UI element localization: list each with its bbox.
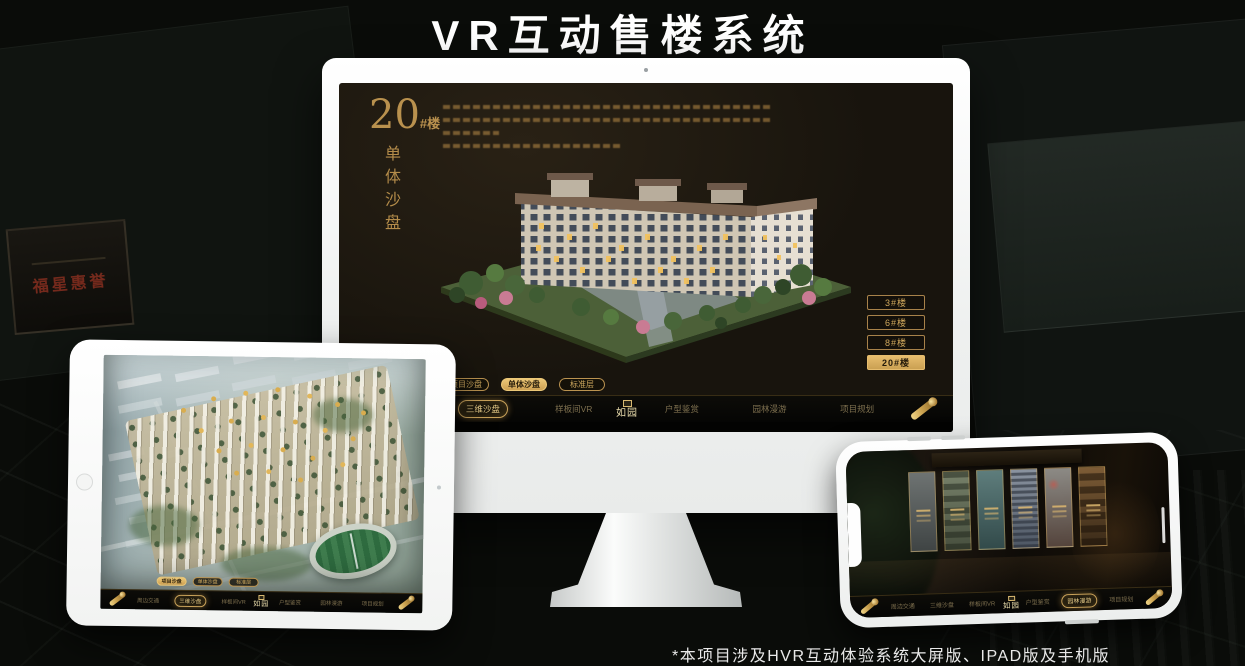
nav-item[interactable]: 样板间VR [222,597,246,605]
brand-logo[interactable]: 如园 [1003,595,1020,609]
phone-screen: 周边交通三维沙盘样板间VR 如园 户型鉴赏园林漫游项目规划 [845,442,1172,618]
nav-item[interactable]: 项目规划 [840,403,874,415]
mode-tab[interactable]: 标准层 [559,378,605,391]
nav-item[interactable]: 户型鉴赏 [279,598,301,606]
scene-panel[interactable] [942,470,971,551]
view-title-vertical: 单体沙盘 [379,145,403,275]
nav-item[interactable]: 三维沙盘 [930,600,954,610]
scene-panel[interactable] [1010,468,1039,549]
monitor-mode-tabs: 项目沙盘单体沙盘标准层 [443,378,605,391]
volume-button[interactable] [941,435,965,440]
mode-tab[interactable]: 单体沙盘 [193,577,223,586]
monitor-stand [546,513,746,607]
tablet-bottom-nav: 周边交通三维沙盘样板间VR 如园 户型鉴赏园林漫游项目规划 [100,589,422,613]
building-button[interactable]: 8#楼 [867,335,925,350]
tablet-mode-tabs: 项目沙盘单体沙盘标准层 [157,577,259,587]
scroll-icon[interactable] [910,398,936,421]
tablet-device: 项目沙盘单体沙盘标准层 周边交通三维沙盘样板间VR 如园 户型鉴赏园林漫游项目规… [66,339,456,630]
intro-text-line [443,105,773,109]
scroll-icon[interactable] [398,596,415,610]
phone-nav-right: 户型鉴赏园林漫游项目规划 [1020,591,1140,609]
plaque-text: 福星惠誉 [32,267,110,298]
scroll-icon[interactable] [860,599,878,615]
background-plaque: 福星惠誉 [6,219,135,335]
power-button[interactable] [1065,619,1099,624]
building-headline: 20#楼 [369,95,440,135]
phone-nav-left: 周边交通三维沙盘样板间VR [883,598,1003,611]
monitor-nav-right: 户型鉴赏园林漫游项目规划 [638,403,901,415]
phone-notch [847,503,862,567]
background-river-photo [987,117,1245,332]
building-number: 20 [369,92,420,138]
mode-tab[interactable]: 标准层 [229,578,259,587]
aerial-vignette [100,355,426,613]
intro-text-line [443,118,773,122]
nav-item[interactable]: 园林漫游 [320,598,342,606]
mode-tab[interactable]: 单体沙盘 [501,378,547,391]
brand-seal-icon [623,400,632,407]
mode-tab[interactable]: 项目沙盘 [157,577,187,586]
building-button[interactable]: 3#楼 [867,295,925,310]
brand-logo-text: 如园 [253,601,269,608]
home-button[interactable] [76,473,93,490]
nav-item[interactable]: 户型鉴赏 [1026,597,1050,607]
nav-item[interactable]: 样板间VR [555,403,592,415]
scene-gallery [908,466,1107,552]
plaque-rule [32,257,106,265]
interior-beam [932,449,1082,468]
home-indicator[interactable] [1161,507,1165,543]
tablet-camera-icon [437,485,441,489]
brand-logo-text: 如园 [1003,601,1020,609]
scene-panel[interactable] [908,471,937,552]
nav-item[interactable]: 项目规划 [362,599,384,607]
background-collage-right [942,16,1245,473]
scene-panel[interactable] [1044,467,1073,548]
tablet-nav-right: 户型鉴赏园林漫游项目规划 [269,598,393,608]
nav-item[interactable]: 样板间VR [969,598,996,608]
brand-logo[interactable]: 如园 [253,595,269,608]
building-button[interactable]: 20#楼 [867,355,925,370]
tablet-screen: 项目沙盘单体沙盘标准层 周边交通三维沙盘样板间VR 如园 户型鉴赏园林漫游项目规… [100,355,426,613]
nav-item[interactable]: 三维沙盘 [458,400,508,418]
building-unit: #楼 [420,116,440,131]
footnote: *本项目涉及HVR互动体验系统大屏版、IPAD版及手机版 [672,642,1110,666]
scene-panel[interactable] [1078,466,1107,547]
brand-logo[interactable]: 如园 [616,400,638,419]
scroll-icon[interactable] [109,592,126,606]
nav-item[interactable]: 周边交通 [137,596,159,604]
page-title: VR互动售楼系统 [0,2,1245,63]
brand-logo-text: 如园 [616,409,638,419]
nav-item[interactable]: 周边交通 [891,601,915,611]
webcam-icon [644,68,648,72]
scene-panel[interactable] [976,469,1005,550]
phone-device: 周边交通三维沙盘样板间VR 如园 户型鉴赏园林漫游项目规划 [835,432,1183,629]
volume-button[interactable] [907,436,931,441]
tablet-nav-left: 周边交通三维沙盘样板间VR [129,594,253,608]
nav-item[interactable]: 园林漫游 [752,403,786,415]
building-button[interactable]: 6#楼 [867,315,925,330]
building-render [411,135,881,375]
nav-item[interactable]: 项目规划 [1109,594,1133,604]
nav-item[interactable]: 户型鉴赏 [665,403,699,415]
scroll-icon[interactable] [1145,590,1163,606]
building-selector: 3#楼6#楼8#楼20#楼 [867,295,925,370]
nav-item[interactable]: 三维沙盘 [174,594,206,606]
nav-item[interactable]: 园林漫游 [1061,593,1097,608]
brand-seal-icon [258,595,264,600]
